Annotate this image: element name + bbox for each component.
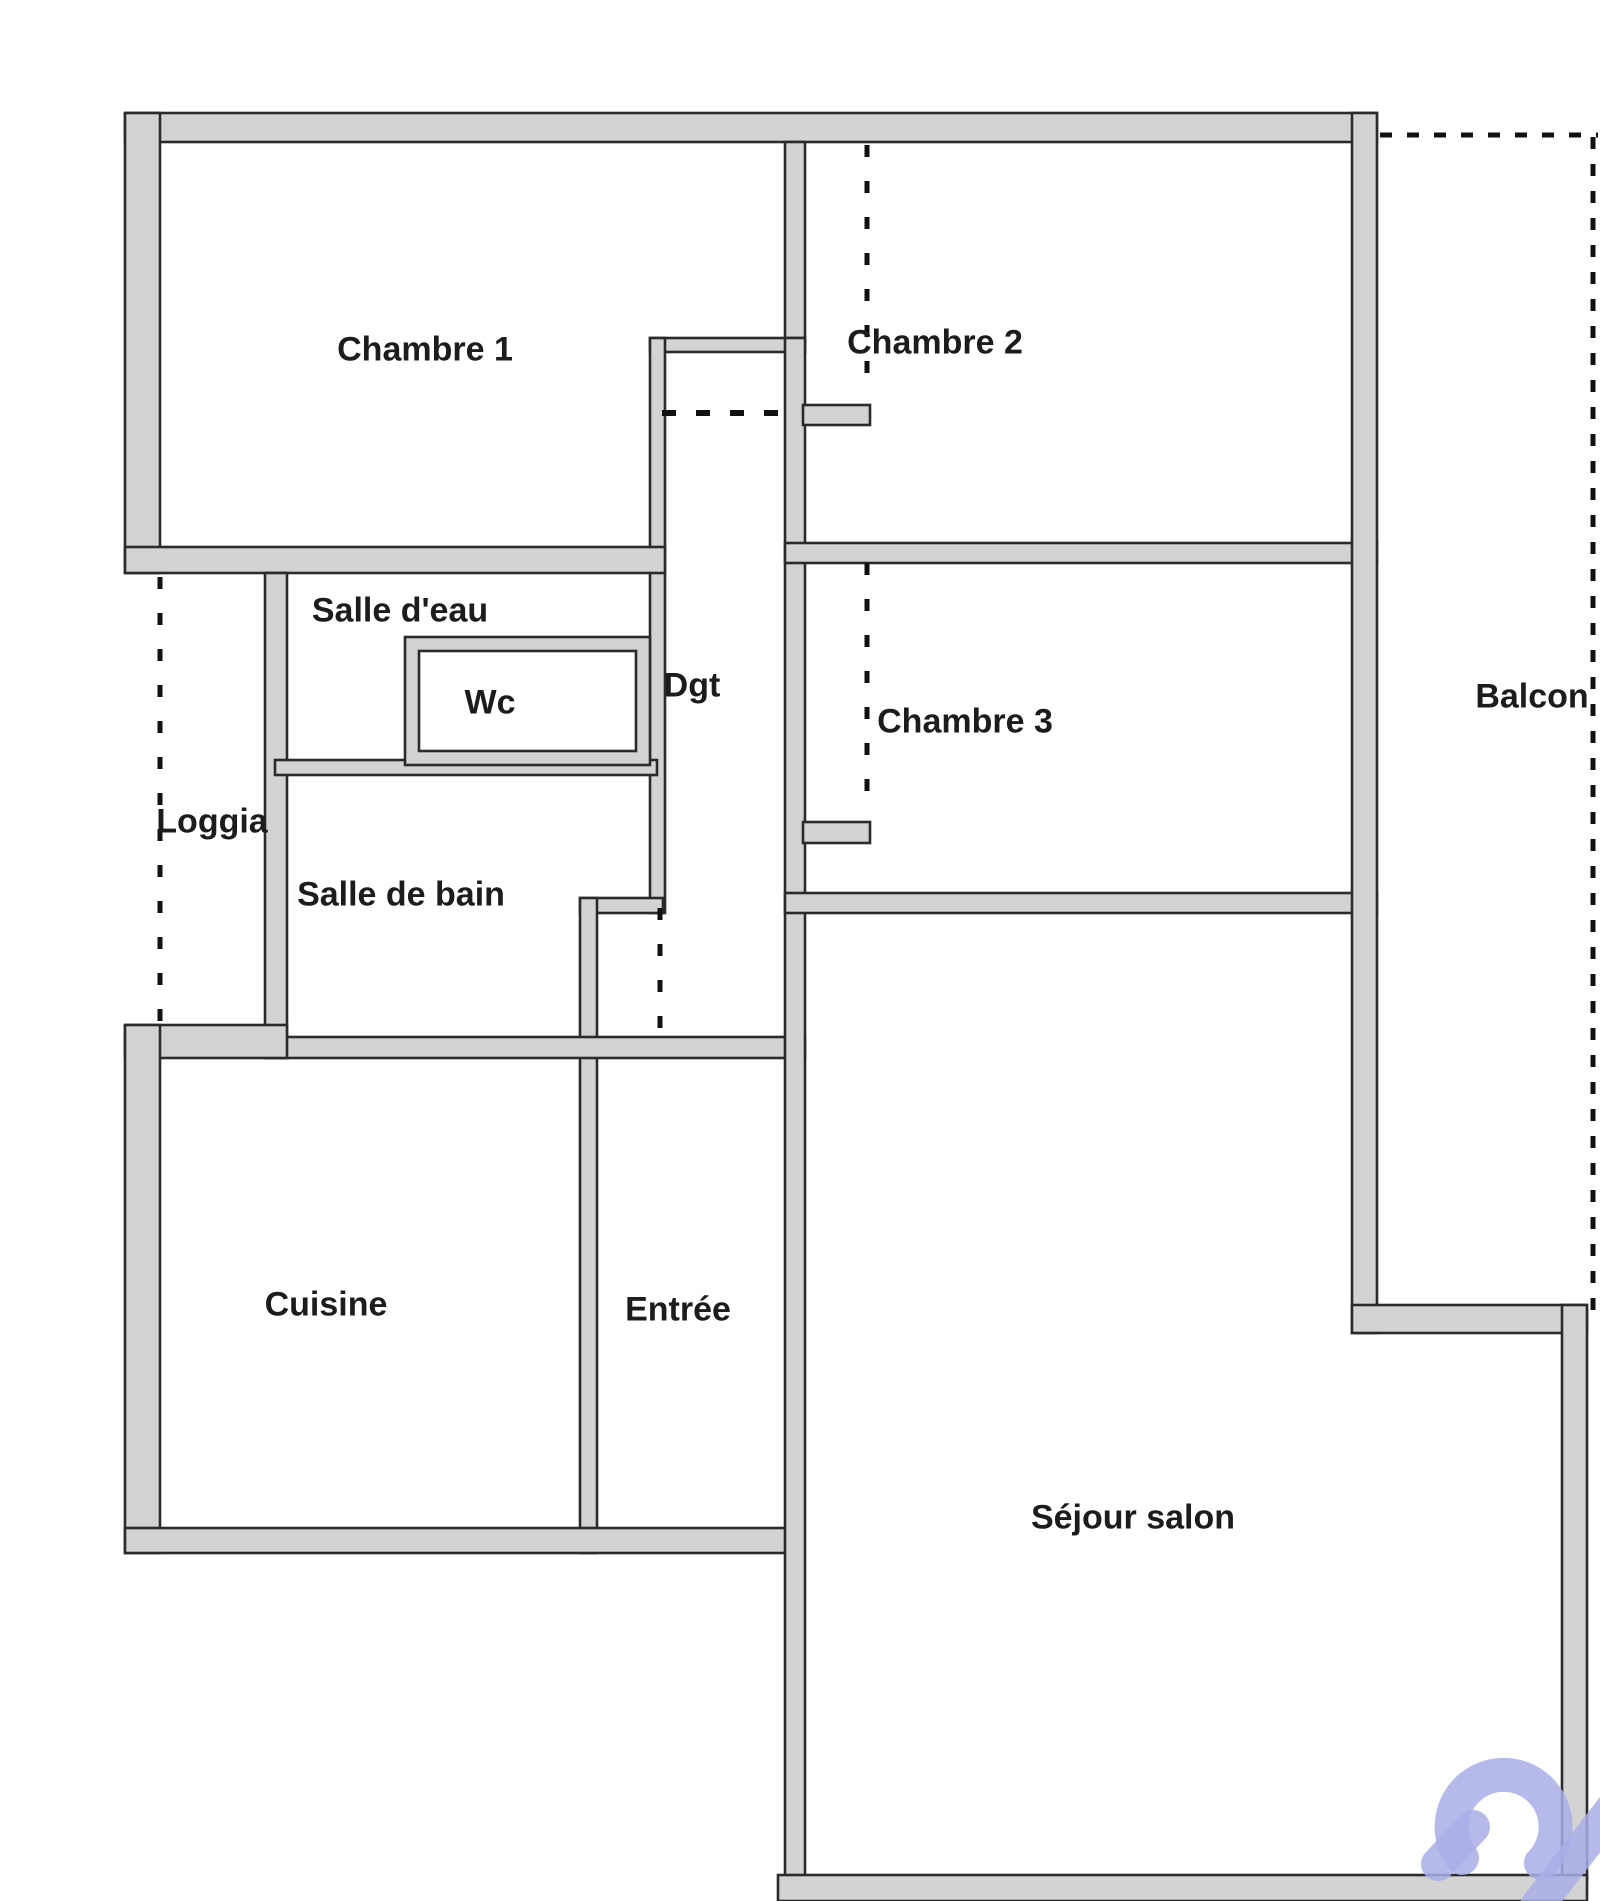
room-label-loggia: Loggia bbox=[156, 803, 267, 842]
wall-cuisine-entree-divider bbox=[580, 898, 597, 1553]
room-label-entree: Entrée bbox=[625, 1291, 731, 1330]
wall-chambre2-chambre3-divider bbox=[785, 543, 1377, 563]
wall-chambre1-bottom bbox=[125, 547, 665, 573]
wall-left-outer-lower bbox=[125, 1025, 160, 1553]
wall-sejour-bottom bbox=[778, 1875, 1587, 1901]
room-label-chambre-3: Chambre 3 bbox=[877, 703, 1053, 742]
wall-right-outer bbox=[1352, 113, 1377, 1333]
room-label-sejour-salon: Séjour salon bbox=[1031, 1499, 1235, 1538]
wall-corridor-left bbox=[650, 338, 665, 913]
wall-chambre3-closet-stub bbox=[803, 822, 870, 843]
wall-chambre1-chambre2-divider bbox=[785, 142, 805, 352]
rooms-layer bbox=[133, 142, 1562, 1875]
wall-chambre3-bottom bbox=[785, 893, 1377, 913]
room-loggia-area bbox=[133, 573, 265, 1025]
room-label-wc: Wc bbox=[465, 684, 516, 723]
wall-sejour-right bbox=[1562, 1305, 1587, 1880]
wall-top-outer bbox=[125, 113, 1377, 142]
room-label-balcon: Balcon bbox=[1475, 678, 1588, 717]
wall-notch-horizontal bbox=[650, 338, 805, 352]
floor-plan-drawing bbox=[0, 0, 1600, 1901]
room-entree-closet-area bbox=[597, 913, 663, 1037]
room-label-dgt: Dgt bbox=[664, 667, 721, 706]
room-label-chambre-2: Chambre 2 bbox=[847, 324, 1023, 363]
wc-box-interior bbox=[419, 651, 636, 751]
wall-bathroom-bottom bbox=[265, 1037, 805, 1058]
room-sejour-salon-area bbox=[805, 913, 1562, 1875]
floor-plan: Chambre 1 Chambre 2 Chambre 3 Salle d'ea… bbox=[0, 0, 1600, 1901]
wall-left-outer-upper bbox=[125, 113, 160, 573]
wall-loggia-right bbox=[265, 573, 287, 1058]
room-label-salle-deau: Salle d'eau bbox=[312, 592, 488, 631]
room-label-chambre-1: Chambre 1 bbox=[337, 331, 513, 370]
room-label-cuisine: Cuisine bbox=[265, 1286, 388, 1325]
wc-box bbox=[405, 637, 650, 765]
wall-central-spine bbox=[785, 338, 805, 1880]
wall-sejour-step bbox=[1352, 1305, 1587, 1333]
wall-chambre2-closet-stub bbox=[803, 405, 870, 425]
room-label-salle-de-bain: Salle de bain bbox=[297, 876, 505, 915]
wall-kitchen-block-bottom bbox=[125, 1528, 803, 1553]
